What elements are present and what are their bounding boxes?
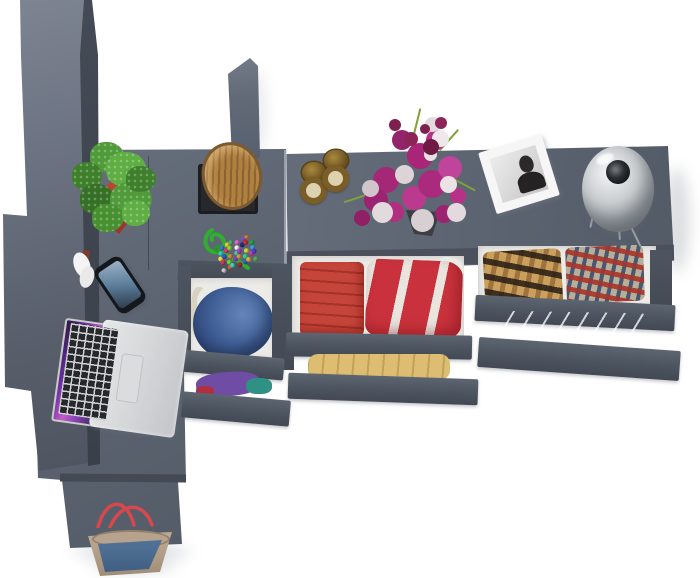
leaf-clump — [122, 200, 150, 226]
right-drawer-right-rail — [650, 250, 672, 312]
hourglass-sand-ring — [322, 165, 349, 192]
lamp-socket-hole — [606, 160, 630, 184]
red-plaid-shirt — [565, 245, 645, 304]
leaf-clump — [92, 204, 124, 232]
right-drawer-front-2 — [477, 337, 681, 381]
teal-shirt — [246, 378, 272, 394]
hourglass-right — [322, 150, 352, 196]
left-drawer-front-2 — [181, 391, 291, 426]
red-white-striped-garment — [365, 258, 464, 339]
desk-sideboard-gap — [284, 150, 287, 268]
portrait-photo — [489, 145, 548, 203]
white-florets — [424, 148, 437, 161]
middle-drawer-front-2 — [288, 373, 479, 406]
folded-red-towels — [300, 262, 364, 336]
plant-foliage — [72, 140, 160, 236]
portrait-shoulders-silhouette — [516, 168, 547, 194]
handbag — [84, 520, 176, 578]
magenta-florets — [398, 166, 414, 182]
flower-stem — [439, 129, 459, 151]
dark-florets — [420, 124, 430, 134]
leaf-clump — [126, 166, 156, 192]
flower-stem — [450, 177, 476, 192]
desk-front-edge — [60, 473, 186, 482]
vase-base — [406, 210, 440, 236]
bag-straps — [84, 494, 176, 528]
room-top-view — [0, 0, 700, 578]
flower-bouquet — [350, 108, 476, 244]
lamp-dome-shade — [582, 146, 654, 232]
laptop — [51, 314, 189, 438]
